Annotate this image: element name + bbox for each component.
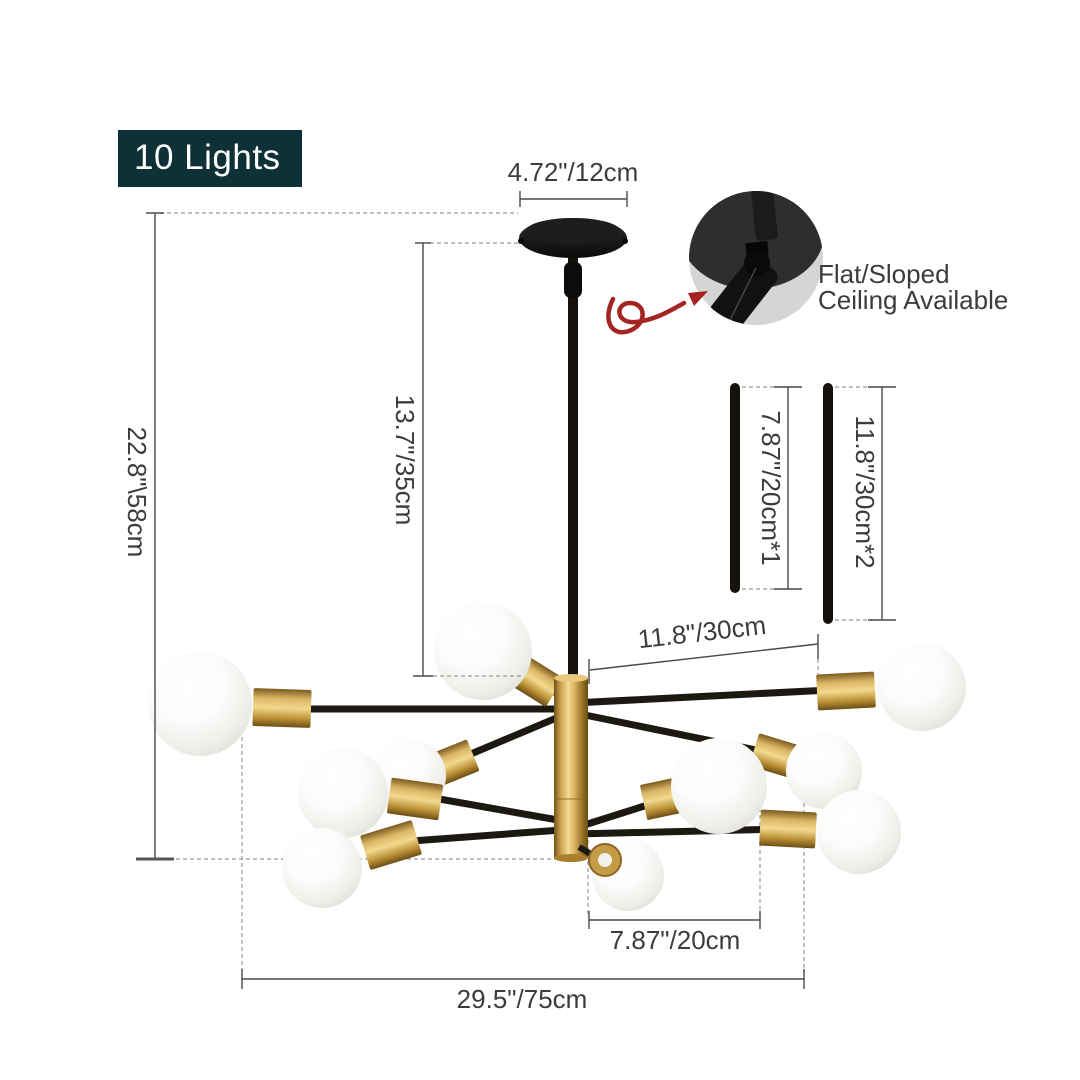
canopy-screw [518,238,524,244]
down-rod-short: 7.87"/20cm*1 [735,387,802,589]
chandelier-illustration [148,218,966,911]
down-rod-long: 11.8"/30cm*2 [828,387,896,620]
down-rod [568,250,578,682]
bulb [671,738,767,834]
arm [573,690,830,703]
dim-label: 4.72"/12cm [508,157,639,187]
arm [576,829,784,834]
red-squiggle-arrow-icon [608,299,684,332]
dim-arm-short: 7.87"/20cm [589,911,760,955]
dim-label: 22.8"\58cm [122,427,152,558]
dim-label: 29.5"/75cm [457,984,588,1014]
column-bottom [554,854,588,862]
dim-label: 11.8"/30cm [636,610,767,654]
dim-canopy-width: 4.72"/12cm [508,157,639,207]
dim-overall-height: 22.8"\58cm [122,213,174,859]
column-top [554,674,588,682]
bulb [817,790,901,874]
canopy-top [526,218,620,244]
bulb [878,643,966,731]
bulb-socket [387,778,444,821]
canopy-screw [622,238,628,244]
dim-label: 13.7"/35cm [390,395,420,526]
center-column [554,678,588,858]
dim-label: 11.8"/30cm*2 [850,415,880,568]
bulb-socket-center [598,853,612,867]
joint-knuckle [744,250,770,276]
bulb-socket [252,688,311,728]
product-diagram-page: 10 Lights [0,0,1080,1080]
bulb-socket [816,672,876,711]
arm [398,829,575,842]
chandelier-dimension-diagram: Flat/Sloped Ceiling Available 4.72"/12cm… [0,0,1080,1080]
dim-arm-long: 11.8"/30cm [589,610,818,684]
dim-overall-width: 29.5"/75cm [242,969,804,1014]
bulb [434,602,532,700]
dim-line [590,644,818,670]
ceiling-joint-photo: Flat/Sloped Ceiling Available [608,179,1008,339]
callout-line2: Ceiling Available [818,285,1008,315]
dim-label: 7.87"/20cm*1 [756,410,786,565]
dim-label: 7.87"/20cm [610,925,741,955]
bulb [148,652,252,756]
bulb-socket [759,810,817,849]
bulb [282,828,362,908]
swivel-joint [564,262,582,298]
arm [428,797,575,823]
bulb [298,748,388,838]
guide-lines [160,213,818,976]
